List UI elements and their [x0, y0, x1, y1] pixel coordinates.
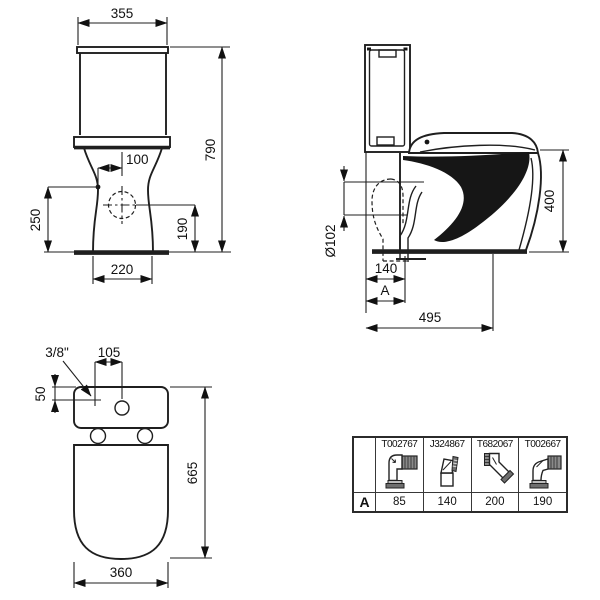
- connector-a-value-3: 200: [471, 492, 519, 511]
- dim-100: 100: [96, 152, 149, 189]
- side-hidden-trap: [372, 179, 407, 261]
- dim-label-100: 100: [126, 152, 149, 167]
- dim-360: 360: [74, 562, 168, 588]
- connector-code-3: T682067: [477, 439, 513, 450]
- angled-straight-connector-icon: [425, 450, 469, 490]
- offset-elbow-connector-icon: [521, 450, 565, 490]
- dim-label-diameter-102: Ø102: [323, 224, 338, 257]
- side-bowl: [372, 152, 541, 262]
- front-view: 355 790 100 250 190 220: [28, 6, 231, 284]
- dim-label-190: 190: [175, 218, 190, 241]
- connector-a-value-4: 190: [518, 492, 566, 511]
- inlet-thread-label: 3/8": [45, 345, 69, 360]
- dim-label-140: 140: [375, 261, 398, 276]
- dim-label-250: 250: [28, 209, 43, 232]
- dim-label-355: 355: [111, 6, 134, 21]
- connector-a-value-1: 85: [375, 492, 423, 511]
- top-view: 3/8" 105 50 665 360: [33, 345, 212, 588]
- technical-drawing-page: 355 790 100 250 190 220: [0, 0, 600, 600]
- top-hinge-band: [74, 429, 168, 446]
- dim-label-105: 105: [98, 345, 121, 360]
- dim-label-790: 790: [203, 139, 218, 162]
- top-seat: [74, 445, 168, 559]
- dim-220: 220: [93, 256, 152, 284]
- elbow-horizontal-outlet-icon: [377, 450, 421, 490]
- dim-A: A: [366, 283, 405, 301]
- connector-column-3: T682067: [471, 438, 519, 492]
- dim-label-360: 360: [110, 565, 133, 580]
- side-view: Ø102 400 140 A 495: [323, 45, 569, 331]
- accessories-table: T002767 J324867 T682067 T: [352, 436, 568, 513]
- side-seat: [409, 133, 538, 153]
- connector-column-1: T002767: [375, 438, 423, 492]
- dim-250: 250: [28, 187, 98, 252]
- dim-label-50: 50: [33, 386, 48, 401]
- 45-degree-bend-connector-icon: [473, 450, 517, 490]
- connector-column-2: J324867: [423, 438, 471, 492]
- dim-50: 50: [33, 374, 90, 413]
- dim-190: 190: [136, 205, 195, 252]
- front-outlet-circle: [103, 186, 141, 224]
- dim-665: 665: [170, 387, 212, 558]
- dim-label-495: 495: [419, 310, 442, 325]
- dim-400: 400: [529, 150, 569, 252]
- side-cistern: [365, 45, 410, 152]
- table-row-label: A: [354, 492, 375, 511]
- dim-105: 105: [95, 345, 122, 399]
- table-corner-cell: [354, 438, 375, 492]
- dim-diameter-102: Ø102: [323, 166, 424, 258]
- connector-code-4: T002667: [525, 439, 561, 450]
- dim-label-400: 400: [542, 190, 557, 213]
- dim-label-665: 665: [185, 462, 200, 485]
- dim-355: 355: [78, 6, 167, 45]
- front-cistern: [74, 47, 170, 148]
- connector-a-value-2: 140: [423, 492, 471, 511]
- connector-column-4: T002667: [518, 438, 566, 492]
- connector-code-1: T002767: [381, 439, 417, 450]
- dim-label-A: A: [380, 283, 389, 298]
- dim-label-220: 220: [111, 262, 134, 277]
- label-inlet-thread: 3/8": [45, 345, 91, 396]
- connector-code-2: J324867: [430, 439, 465, 450]
